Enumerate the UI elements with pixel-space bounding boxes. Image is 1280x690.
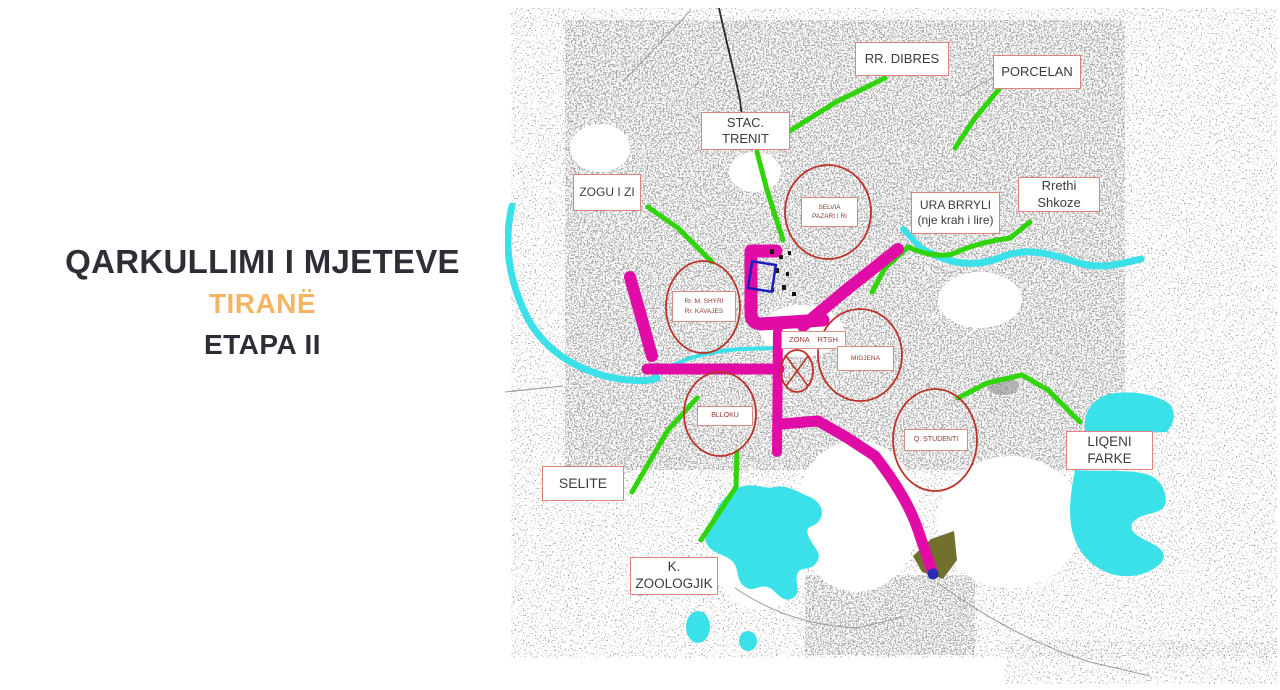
open-area-river-east bbox=[938, 272, 1022, 328]
label-liqeni-farke-text: LIQENI FARKE bbox=[1067, 434, 1152, 468]
slide-title: QARKULLIMI I MJETEVE TIRANË ETAPA II bbox=[40, 244, 485, 361]
label-selite: SELITE bbox=[542, 466, 624, 501]
label-porcelan: PORCELAN bbox=[993, 55, 1081, 89]
zone-label-blloku-text: BLLOKU bbox=[711, 411, 739, 421]
title-line-2: TIRANË bbox=[40, 289, 485, 320]
label-ura-brryli: URA BRRYLI (nje krah i lire) bbox=[911, 192, 1000, 234]
pond-zoo bbox=[686, 611, 710, 643]
label-selite-text: SELITE bbox=[559, 475, 607, 493]
label-ura-brryli-line1: URA BRRYLI bbox=[920, 198, 991, 213]
zone-label-zona-rtsh-text: ZONA RTSH bbox=[789, 335, 838, 346]
map-texture-bottom-right bbox=[1005, 640, 1277, 684]
label-k-zoologjik-text: K. ZOOLOGJIK bbox=[631, 559, 717, 593]
title-line-3: ETAPA II bbox=[40, 330, 485, 361]
zone-label-selvia-line2: PAZARI I RI bbox=[812, 212, 847, 221]
label-rrethi-shkoze-text: Rrethi Shkoze bbox=[1019, 178, 1099, 211]
route-end-marker bbox=[928, 569, 939, 580]
label-k-zoologjik: K. ZOOLOGJIK bbox=[630, 557, 718, 595]
zone-label-q-studenti: Q. STUDENTI bbox=[904, 429, 968, 451]
label-rr-dibres: RR. DIBRES bbox=[855, 42, 949, 76]
label-stac-trenit: STAC. TRENIT bbox=[701, 112, 790, 150]
label-zogu-i-zi-text: ZOGU I ZI bbox=[579, 185, 634, 200]
zone-label-migjena-text: MIGJENA bbox=[851, 354, 880, 363]
open-area-northwest bbox=[570, 124, 630, 172]
zone-label-selvia-line1: SELVIA bbox=[818, 203, 840, 212]
zone-label-migjena: MIGJENA bbox=[837, 346, 894, 371]
open-area-station bbox=[729, 152, 781, 192]
city-map-canvas bbox=[505, 0, 1280, 690]
zone-label-blloku: BLLOKU bbox=[697, 406, 753, 426]
route-rtsh-vertical bbox=[777, 332, 778, 452]
zone-label-mshyri-line2: Rr. KAVAJES bbox=[685, 307, 723, 316]
zone-label-q-studenti-text: Q. STUDENTI bbox=[914, 435, 958, 445]
label-ura-brryli-line2: (nje krah i lire) bbox=[917, 213, 993, 228]
label-rr-dibres-text: RR. DIBRES bbox=[865, 51, 939, 67]
zone-label-mshyri: Rr. M. SHYRI Rr. KAVAJES bbox=[672, 291, 736, 322]
title-line-1: QARKULLIMI I MJETEVE bbox=[40, 244, 485, 280]
map-texture-south bbox=[805, 575, 975, 655]
label-liqeni-farke: LIQENI FARKE bbox=[1066, 431, 1153, 470]
open-area-east bbox=[938, 456, 1082, 588]
label-rrethi-shkoze: Rrethi Shkoze bbox=[1018, 177, 1100, 212]
tirana-map: RR. DIBRES PORCELAN STAC. TRENIT ZOGU I … bbox=[505, 0, 1280, 690]
zone-label-mshyri-line1: Rr. M. SHYRI bbox=[684, 297, 723, 306]
label-zogu-i-zi: ZOGU I ZI bbox=[573, 174, 641, 211]
pond-small bbox=[739, 631, 757, 651]
zone-label-selvia: SELVIA PAZARI I RI bbox=[801, 197, 858, 227]
label-stac-trenit-text: STAC. TRENIT bbox=[702, 115, 789, 148]
label-porcelan-text: PORCELAN bbox=[1001, 64, 1073, 80]
